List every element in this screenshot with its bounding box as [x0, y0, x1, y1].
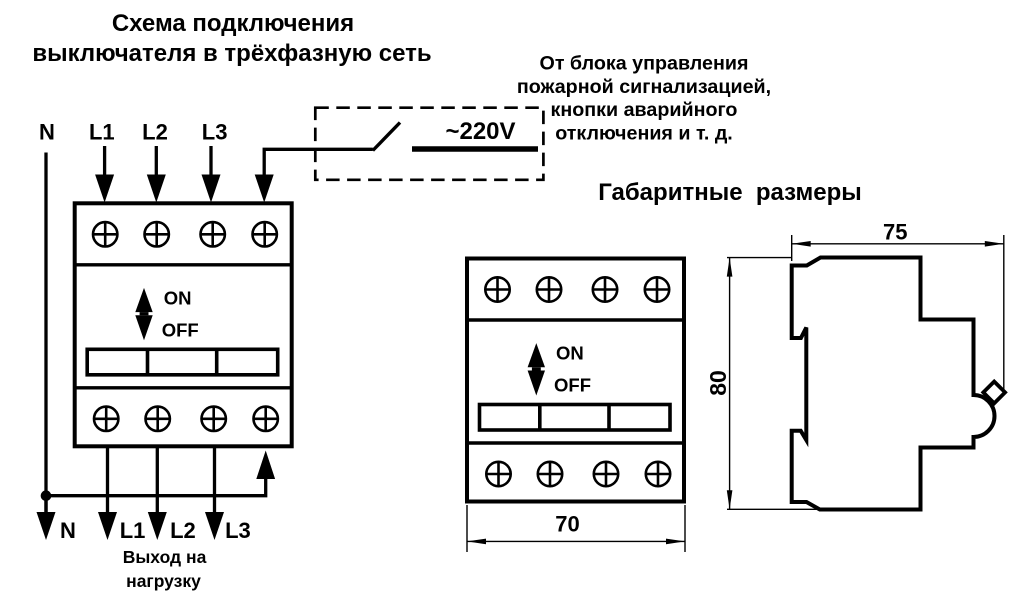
svg-text:80: 80 — [705, 370, 731, 396]
svg-text:L2: L2 — [142, 120, 168, 145]
svg-text:Габаритные размеры: Габаритные размеры — [598, 179, 862, 206]
svg-text:70: 70 — [555, 512, 579, 537]
svg-text:выключателя в трёхфазную сеть: выключателя в трёхфазную сеть — [32, 40, 431, 67]
svg-text:Выход на: Выход на — [123, 547, 207, 567]
svg-text:Схема подключения: Схема подключения — [112, 10, 354, 37]
svg-text:кнопки аварийного: кнопки аварийного — [551, 99, 738, 121]
svg-text:~220V: ~220V — [445, 118, 515, 145]
svg-text:L1: L1 — [89, 120, 115, 145]
svg-text:N: N — [39, 120, 55, 145]
svg-text:75: 75 — [883, 219, 907, 244]
svg-text:L3: L3 — [202, 120, 228, 145]
svg-text:пожарной сигнализацией,: пожарной сигнализацией, — [517, 76, 771, 98]
svg-text:отключения и т. д.: отключения и т. д. — [555, 122, 733, 144]
svg-text:N: N — [60, 518, 76, 543]
svg-text:L1: L1 — [120, 518, 146, 543]
svg-text:L3: L3 — [225, 518, 251, 543]
svg-text:От блока управления: От блока управления — [540, 53, 749, 75]
svg-text:нагрузку: нагрузку — [126, 571, 201, 591]
svg-text:L2: L2 — [170, 518, 196, 543]
